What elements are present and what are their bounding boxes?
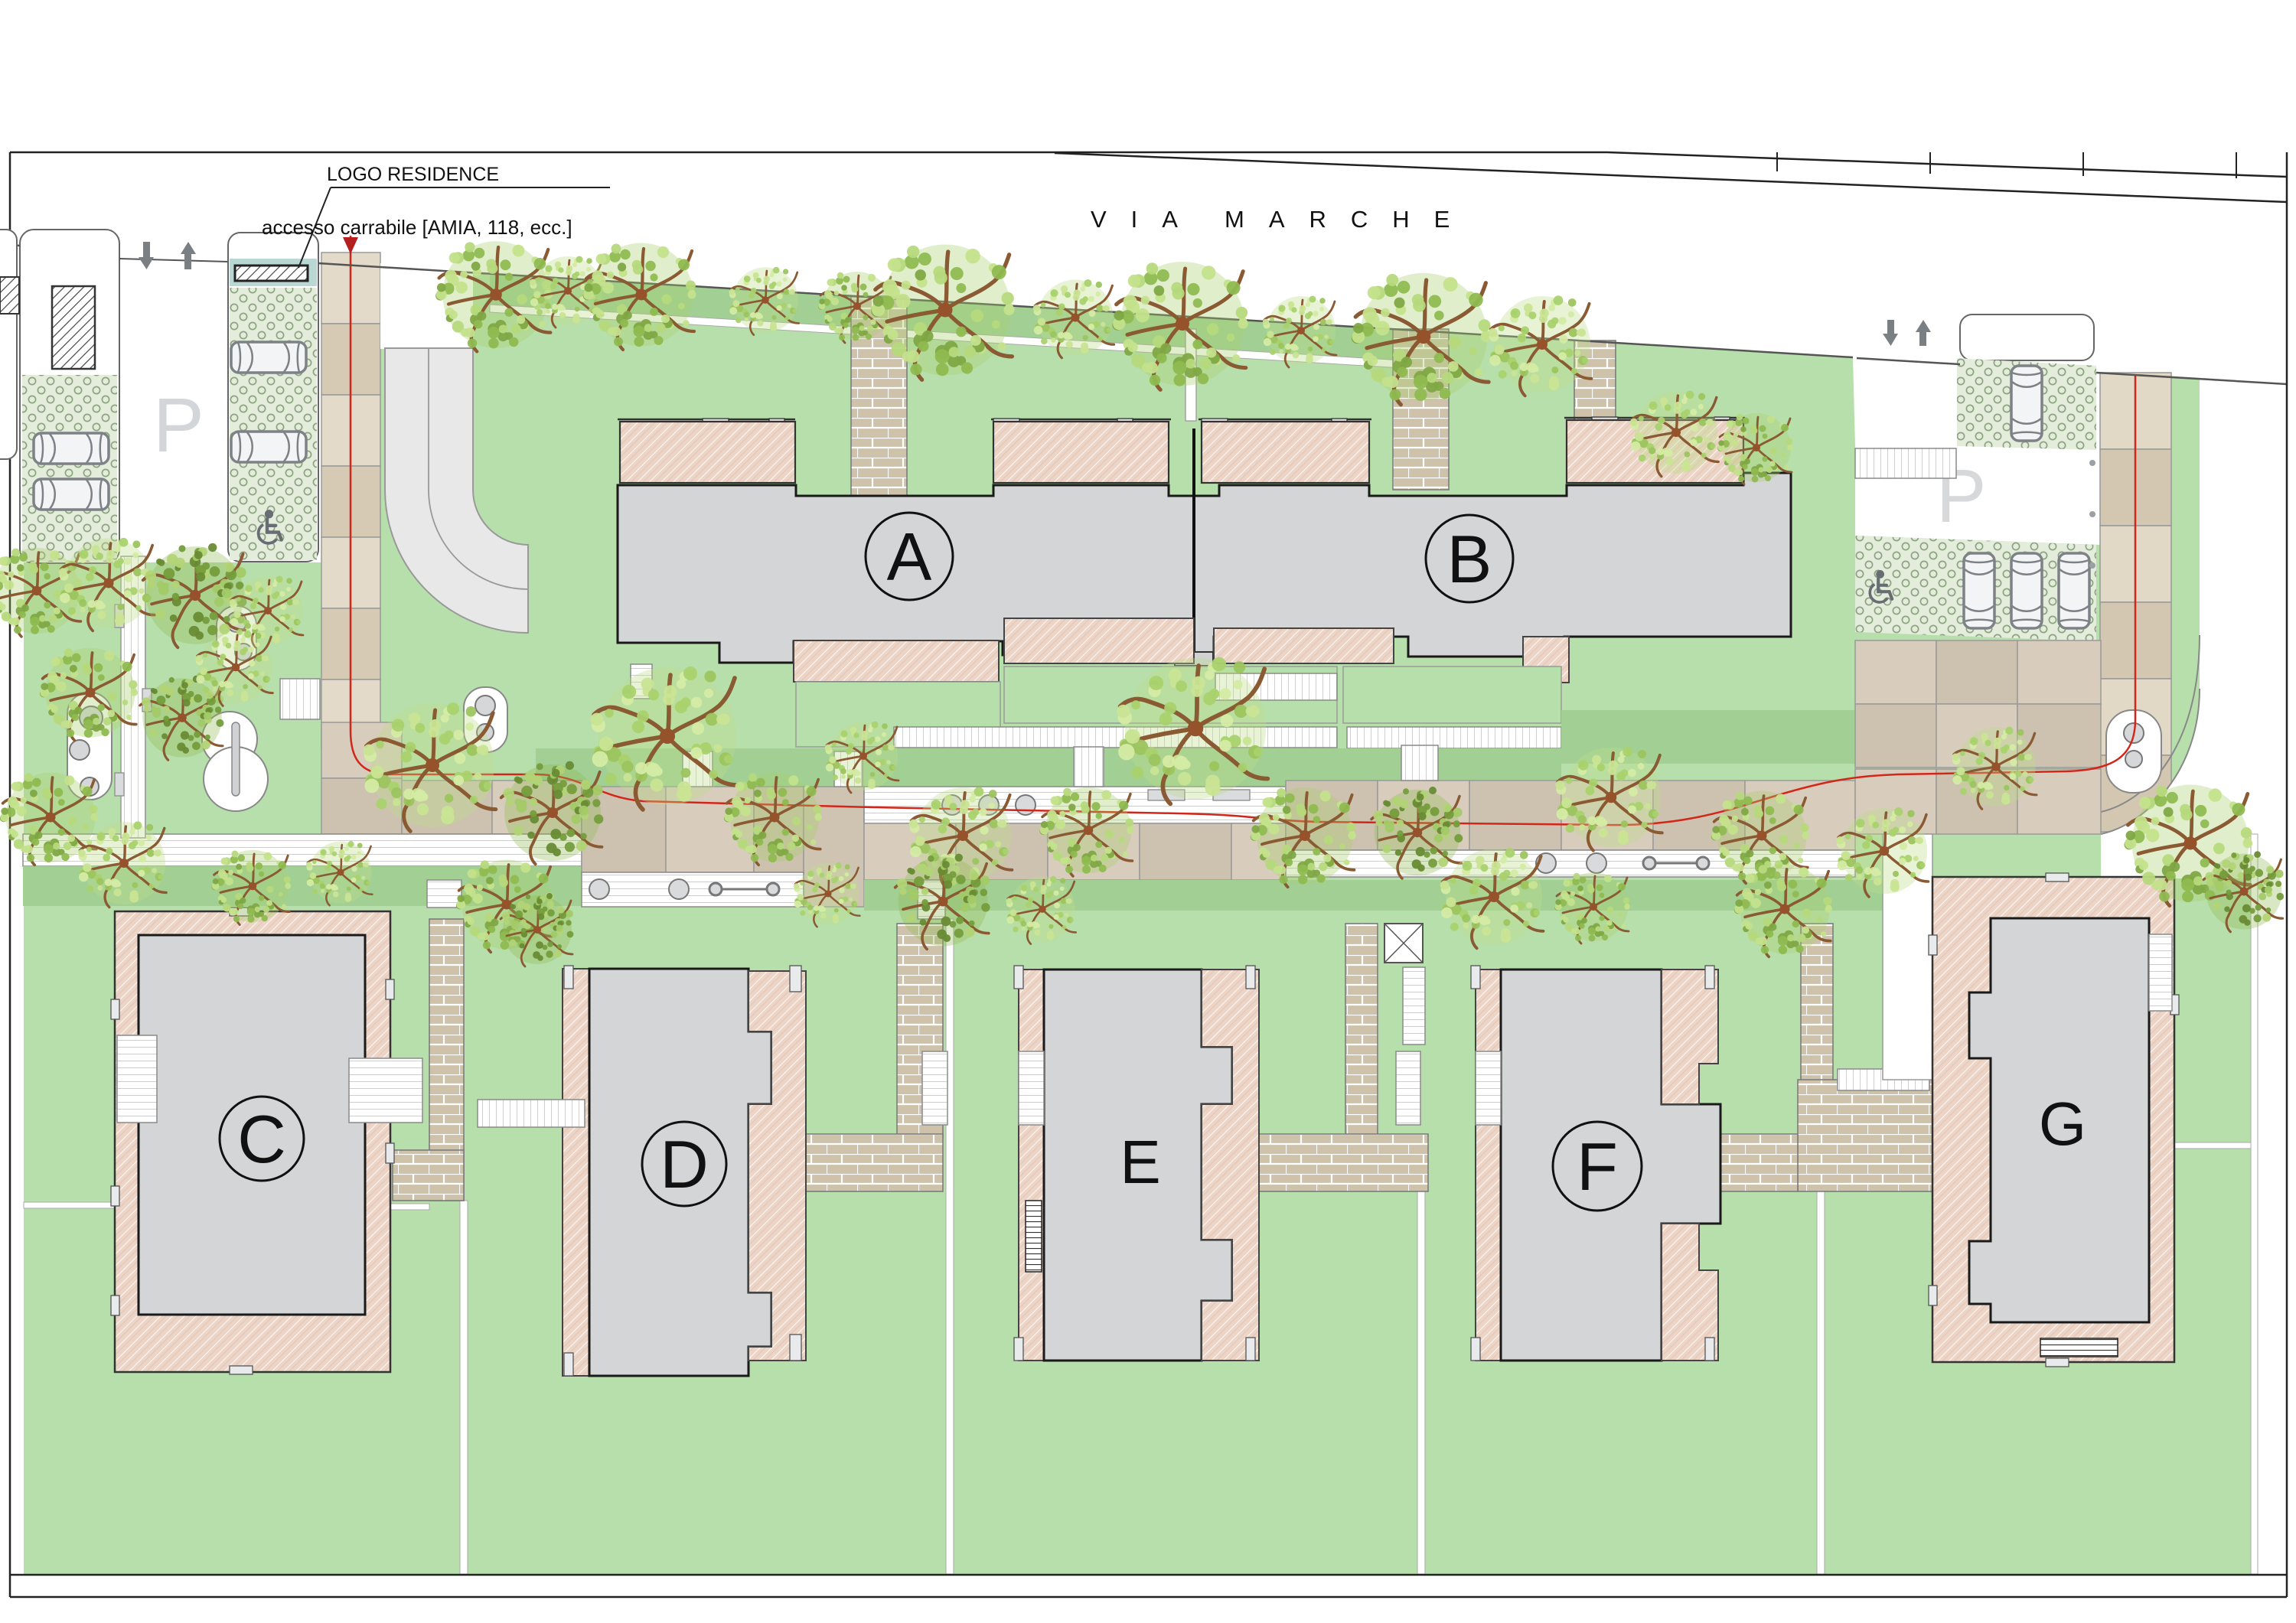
- svg-text:G: G: [2039, 1090, 2086, 1158]
- svg-text:F: F: [1577, 1129, 1618, 1204]
- svg-text:B: B: [1447, 521, 1492, 597]
- svg-text:P: P: [153, 383, 204, 468]
- svg-text:MARCHE: MARCHE: [1225, 206, 1474, 233]
- svg-text:E: E: [1120, 1128, 1160, 1196]
- svg-text:C: C: [237, 1101, 286, 1177]
- svg-text:D: D: [660, 1126, 709, 1202]
- svg-text:accesso carrabile [AMIA, 118,: accesso carrabile [AMIA, 118, ecc.]: [262, 216, 572, 239]
- svg-text:A: A: [887, 519, 932, 595]
- svg-text:VIA: VIA: [1091, 206, 1202, 233]
- svg-text:LOGO RESIDENCE: LOGO RESIDENCE: [327, 164, 499, 185]
